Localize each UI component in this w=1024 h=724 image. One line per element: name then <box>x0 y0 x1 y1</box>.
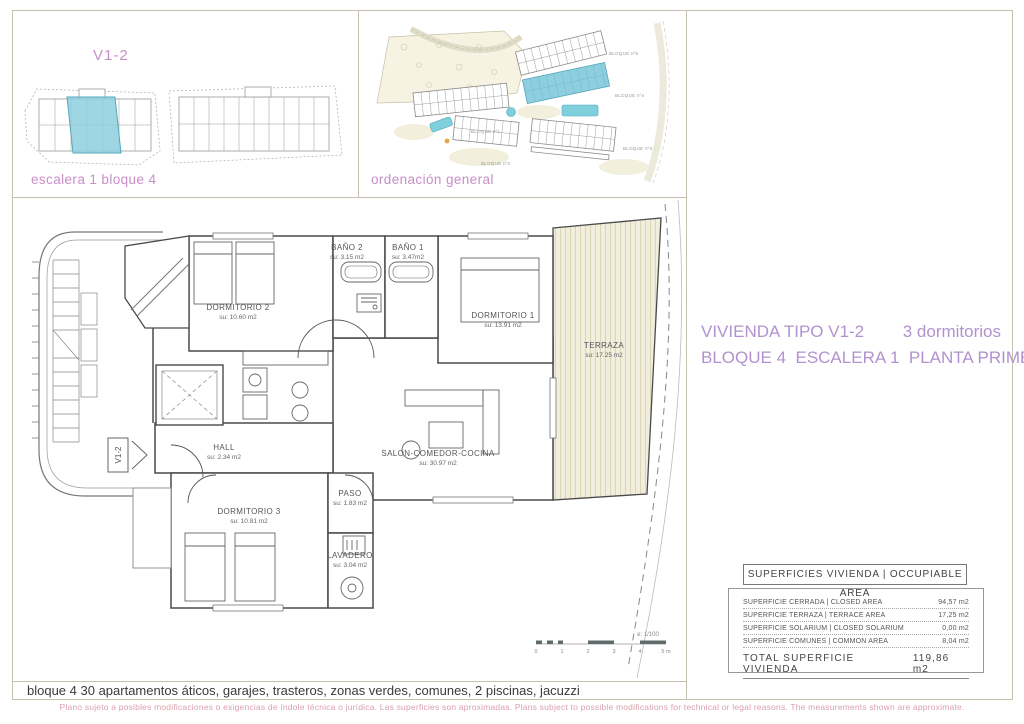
area-row-value: 0,00 m2 <box>942 625 969 632</box>
unit-marker-label: V1-2 <box>114 446 123 463</box>
area-row-value: 8,04 m2 <box>942 638 969 645</box>
area-row-value: 17,25 m2 <box>938 612 969 619</box>
scale-tick: 4 <box>638 649 641 655</box>
locator-caption: escalera 1 bloque 4 <box>31 172 156 187</box>
hall-room <box>155 423 333 473</box>
site-plan-caption: ordenación general <box>371 172 494 187</box>
scale-tick: 1 <box>560 649 563 655</box>
floor-plan-drawing: V1-2 e: 1/100 012345 m DORMITORIO 2su: 1… <box>13 198 686 682</box>
disclaimer: Plano sujeto a posibles modificaciones o… <box>0 702 1024 712</box>
dormitorio1-room <box>438 236 553 363</box>
area-total-value: 119,86 m2 <box>913 653 969 675</box>
dwelling-title: VIVIENDA TIPO V1-2 3 dormitorios BLOQUE … <box>701 319 1001 371</box>
side-balcony <box>133 488 171 568</box>
scale-tick: 2 <box>586 649 589 655</box>
dwelling-location: BLOQUE 4 ESCALERA 1 PLANTA PRIMERA <box>701 345 1001 371</box>
bloque-2-label: BLOQUE nº2 <box>481 161 510 166</box>
bloque-5-label: BLOQUE nº5 <box>609 51 638 56</box>
development-summary: bloque 4 30 apartamentos áticos, garajes… <box>13 682 686 699</box>
dormitorio3-room <box>171 473 328 608</box>
bloque-1-label: BLOQUE nº1 <box>471 129 500 134</box>
info-column: VIVIENDA TIPO V1-2 3 dormitorios BLOQUE … <box>686 11 1012 699</box>
scale-tick: 3 <box>612 649 615 655</box>
unit-type-label: V1-2 <box>93 47 129 64</box>
building-locator-drawing <box>17 69 354 169</box>
terrace-area <box>553 218 661 500</box>
area-row: SUPERFICIE COMUNES | COMMON AREA8,04 m2 <box>743 635 969 648</box>
playground-dot <box>445 139 450 144</box>
right-wing <box>169 86 342 163</box>
area-table: SUPERFICIE CERRADA | CLOSED AREA94,57 m2… <box>728 588 984 673</box>
bottom-strip: bloque 4 30 apartamentos áticos, garajes… <box>13 681 686 699</box>
area-row: SUPERFICIE TERRAZA | TERRACE AREA17,25 m… <box>743 609 969 622</box>
left-wing <box>25 89 160 165</box>
bloque-3-label: BLOQUE nº3 <box>623 146 652 151</box>
area-row-label: SUPERFICIE SOLARIUM | CLOSED SOLARIUM <box>743 625 904 632</box>
scale-tick: 5 m <box>661 649 671 655</box>
bloque-3 <box>529 119 616 161</box>
elevator <box>156 365 223 425</box>
scale-bar: e: 1/100 012345 m <box>534 632 671 655</box>
area-row-label: SUPERFICIE TERRAZA | TERRACE AREA <box>743 612 885 619</box>
site-plan-panel: BLOQUE nº5 BLOQUE nº4 BLOQUE nº3 BLOQUE … <box>358 11 687 197</box>
area-row-value: 94,57 m2 <box>938 599 969 606</box>
scale-ticks: 012345 m <box>534 649 671 655</box>
side-road <box>647 23 663 181</box>
area-total-row: TOTAL SUPERFICIE VIVIENDA 119,86 m2 <box>743 648 969 679</box>
area-table-header: SUPERFICIES VIVIENDA | OCCUPIABLE AREA <box>743 564 967 585</box>
unit-locator-panel: V1-2 escalera 1 bloque 4 <box>13 11 358 197</box>
area-total-label: TOTAL SUPERFICIE VIVIENDA <box>743 653 913 675</box>
area-row: SUPERFICIE CERRADA | CLOSED AREA94,57 m2 <box>743 596 969 609</box>
sheet-frame: V1-2 escalera 1 bloque 4 <box>12 10 1013 700</box>
area-row-label: SUPERFICIE CERRADA | CLOSED AREA <box>743 599 882 606</box>
site-plan-drawing: BLOQUE nº5 BLOQUE nº4 BLOQUE nº3 BLOQUE … <box>359 17 687 187</box>
highlighted-unit <box>67 97 121 153</box>
dwelling-type: VIVIENDA TIPO V1-2 <box>701 319 864 345</box>
bloque-4-label: BLOQUE nº4 <box>615 93 644 98</box>
dormitorio2-room <box>189 236 333 351</box>
area-row-label: SUPERFICIE COMUNES | COMMON AREA <box>743 638 888 645</box>
bedroom-count: 3 dormitorios <box>903 319 1001 345</box>
area-row: SUPERFICIE SOLARIUM | CLOSED SOLARIUM0,0… <box>743 622 969 635</box>
floor-plan: V1-2 e: 1/100 012345 m DORMITORIO 2su: 1… <box>13 197 686 682</box>
scale-tick: 0 <box>534 649 537 655</box>
lavadero-room <box>328 533 373 608</box>
scale-label: e: 1/100 <box>637 632 659 638</box>
area-rows: SUPERFICIE CERRADA | CLOSED AREA94,57 m2… <box>743 596 969 648</box>
